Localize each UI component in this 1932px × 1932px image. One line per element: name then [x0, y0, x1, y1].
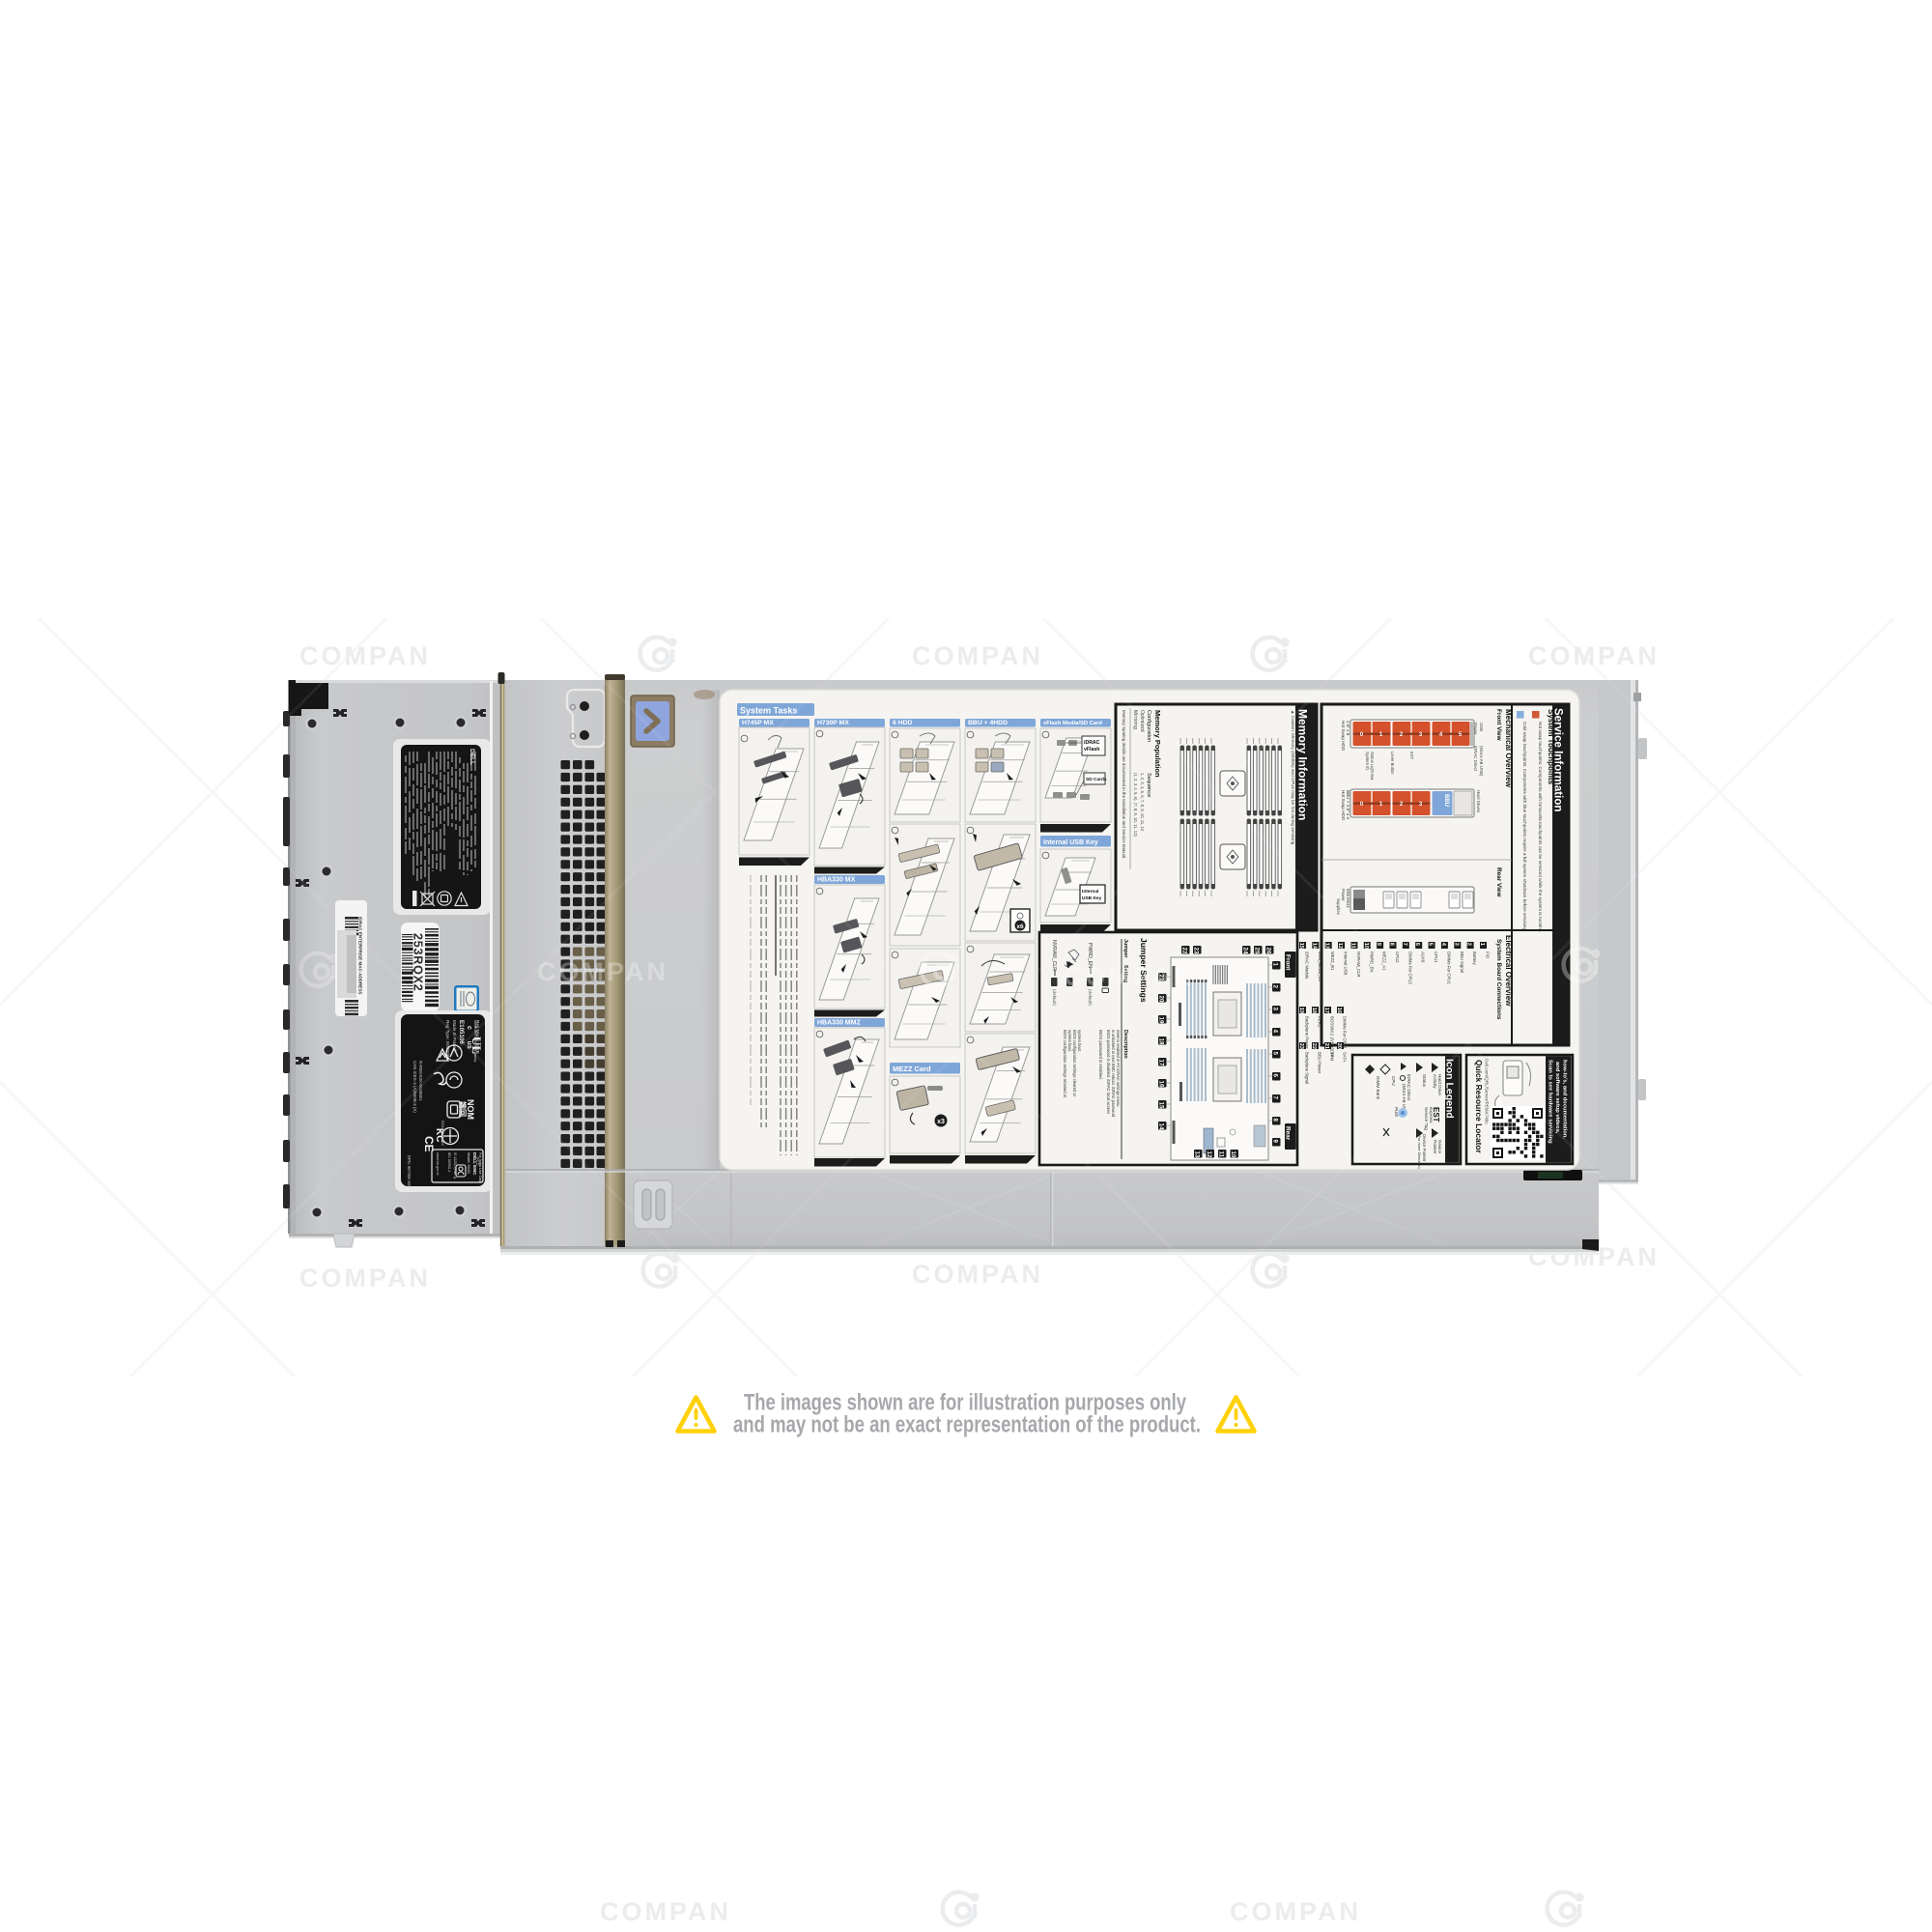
svg-text:For India Use Only: For India Use Only [478, 1152, 482, 1183]
svg-text:System Tasks: System Tasks [740, 706, 797, 716]
svg-text:12: 12 [1206, 1151, 1212, 1158]
svg-text:Description: Description [1122, 1030, 1128, 1059]
svg-text:PWRD_EN: PWRD_EN [1369, 952, 1374, 973]
svg-text:Quick Resource Locator: Quick Resource Locator [1474, 1060, 1484, 1154]
svg-text:vFlash Media/SD Card: vFlash Media/SD Card [1043, 721, 1102, 726]
svg-text:18: 18 [1157, 1038, 1164, 1045]
svg-text:24: 24 [1241, 948, 1248, 954]
svg-text:BBU Power: BBU Power [1318, 1052, 1322, 1074]
svg-text:Internal USB: Internal USB [1344, 952, 1349, 975]
svg-text:(For more Direction): (For more Direction) [1417, 1134, 1422, 1169]
svg-text:Mechanical Overview: Mechanical Overview [1504, 709, 1513, 788]
svg-text:23: 23 [1298, 1043, 1304, 1049]
svg-text:6 HDD: 6 HDD [893, 720, 912, 726]
svg-text:15: 15 [1298, 943, 1304, 949]
svg-text:16: 16 [1157, 1081, 1164, 1088]
svg-text:System Board Connections: System Board Connections [1495, 939, 1502, 1020]
svg-text:and may not be an exact repres: and may not be an exact representation o… [733, 1412, 1201, 1438]
svg-text:reset is enabled in F2 iDRAC s: reset is enabled in F2 iDRAC settings me… [1116, 1030, 1121, 1108]
svg-text:BIOS password is disabled. iDR: BIOS password is disabled. iDRAC local a… [1106, 1030, 1111, 1114]
svg-text:MINI_MEZZ_C1: MINI_MEZZ_C1 [1318, 952, 1322, 982]
svg-text:MEZZ_B1: MEZZ_B1 [1330, 952, 1335, 971]
svg-text:1, 2, 3, 4, 5, 6, 7, 8, 9, 10,: 1, 2, 3, 4, 5, 6, 7, 8, 9, 10, 11, 12 [1140, 773, 1145, 832]
svg-text:10: 10 [1230, 1151, 1236, 1158]
svg-text:9: 9 [1376, 943, 1381, 946]
svg-text:Internal USB Key: Internal USB Key [1043, 839, 1098, 846]
svg-text:TPM: TPM [1330, 1052, 1335, 1061]
svg-text:(Micro-AB USB): (Micro-AB USB) [1479, 746, 1484, 777]
svg-text:www.bis.gov.in: www.bis.gov.in [436, 1152, 440, 1176]
svg-text:HBA330 MMZ: HBA330 MMZ [817, 1020, 861, 1027]
svg-text:Status Light Bar: Status Light Bar [1370, 752, 1375, 781]
svg-text:BBU Signal: BBU Signal [1460, 952, 1464, 973]
svg-text:Hot Swap HDD: Hot Swap HDD [1341, 790, 1346, 821]
svg-text:(default): (default) [1052, 989, 1057, 1006]
svg-text:22: 22 [1311, 1043, 1317, 1049]
svg-text:4: 4 [1271, 1030, 1278, 1034]
svg-text:Power: Power [1473, 723, 1478, 735]
svg-text:vFlash: vFlash [1084, 747, 1099, 753]
svg-text:12: 12 [1337, 943, 1343, 949]
svg-text:R-REM-E2K-E04B001: R-REM-E2K-E04B001 [418, 1061, 423, 1101]
svg-text:1: 1 [1479, 943, 1485, 946]
svg-text:H745P MX: H745P MX [742, 720, 774, 726]
svg-text:BIOS configuration settings cl: BIOS configuration settings cleared at [1072, 1030, 1077, 1097]
svg-text:11: 11 [1350, 943, 1355, 949]
svg-text:▲ Caution: Memory (DIMMs) and: ▲ Caution: Memory (DIMMs) and CPUs may b… [1291, 710, 1295, 845]
svg-text:22: 22 [1180, 948, 1187, 954]
svg-text:15: 15 [1157, 1102, 1164, 1109]
svg-text:COMPAN: COMPAN [299, 1264, 431, 1293]
svg-text:5: 5 [1428, 943, 1434, 946]
svg-text:EST: EST [1409, 752, 1414, 760]
svg-text:19: 19 [1157, 1017, 1164, 1024]
svg-text:BBU: BBU [1443, 794, 1449, 807]
svg-text:BBU + 4HDD: BBU + 4HDD [968, 720, 1008, 726]
svg-text:USB Key: USB Key [1082, 895, 1102, 901]
svg-text:Dell.com/QRL/Server/PEMX740c: Dell.com/QRL/Server/PEMX740c [1485, 1059, 1490, 1124]
svg-text:iDRAC Direct: iDRAC Direct [1473, 746, 1478, 772]
svg-text:2: 2 [1466, 943, 1472, 946]
svg-text:Sequence: Sequence [1146, 773, 1151, 797]
svg-text:13: 13 [1324, 943, 1330, 949]
svg-text:how-to’s, and documentation.: how-to’s, and documentation. [1562, 1060, 1568, 1139]
svg-text:11: 11 [1217, 1151, 1224, 1158]
svg-text:Lever Button: Lever Button [1390, 752, 1395, 775]
svg-text:2: 2 [1271, 985, 1278, 989]
svg-text:17: 17 [1157, 1060, 1164, 1066]
svg-text:H730P MX: H730P MX [817, 720, 849, 726]
svg-text:Memory Information: Memory Information [1296, 709, 1310, 820]
svg-text:CAN ICES-3 (A)/NMB-3 (A): CAN ICES-3 (A)/NMB-3 (A) [412, 1061, 417, 1113]
svg-text:CPU1: CPU1 [1434, 952, 1438, 963]
svg-text:Memory Population: Memory Population [1153, 710, 1162, 778]
svg-text:Memory Sparing details are doc: Memory Sparing details are documented in… [1122, 710, 1126, 860]
svg-text:AUX0: AUX0 [1421, 952, 1426, 963]
svg-text:HBA330 MX: HBA330 MX [817, 877, 856, 884]
svg-text:Jumper: Jumper [1122, 939, 1128, 958]
svg-text:system boot.: system boot. [1067, 1030, 1072, 1052]
svg-text:Internal: Internal [1082, 889, 1098, 895]
svg-text:COMPAN: COMPAN [912, 1260, 1043, 1289]
svg-text:9: 9 [1271, 1140, 1278, 1144]
svg-text:COMPAN: COMPAN [299, 641, 431, 670]
svg-text:x3: x3 [937, 1119, 945, 1125]
svg-text:SD Cards: SD Cards [1086, 777, 1107, 782]
svg-text:21: 21 [1323, 1043, 1329, 1049]
svg-text:x6: x6 [1016, 923, 1024, 930]
svg-text:SATA: SATA [1343, 1052, 1348, 1063]
svg-text:DIMMs For CPU2: DIMMs For CPU2 [1407, 952, 1412, 985]
svg-text:13: 13 [1193, 1151, 1200, 1158]
svg-text:iDRAC: iDRAC [1084, 740, 1100, 746]
svg-text:Hard Drives: Hard Drives [1476, 790, 1481, 813]
svg-text:7: 7 [1271, 1096, 1278, 1100]
svg-text:System Touchpoints: System Touchpoints [1547, 709, 1555, 785]
svg-text:USB: USB [1479, 723, 1484, 731]
svg-text:Cold swap touchpoints: Compone: Cold swap touchpoints: Components with b… [1522, 722, 1527, 931]
svg-text:Front View: Front View [1495, 709, 1502, 741]
svg-text:Backplane Signal: Backplane Signal [1305, 1052, 1310, 1084]
svg-text:8: 8 [1271, 1119, 1278, 1122]
svg-text:17: 17 [1323, 1008, 1329, 1013]
svg-text:Scan to see hardware servicing: Scan to see hardware servicing [1548, 1060, 1553, 1144]
svg-text:諧回: 諧回 [458, 1101, 468, 1117]
svg-text:(default): (default) [1088, 989, 1093, 1006]
svg-text:DELL: DELL [469, 749, 475, 765]
svg-text:Rear View: Rear View [1495, 867, 1502, 896]
svg-text:iDRAC Module: iDRAC Module [1304, 952, 1309, 980]
svg-text:COMPAN: COMPAN [600, 1897, 731, 1926]
svg-text:18: 18 [1311, 1008, 1317, 1013]
svg-text:MEZZ Card: MEZZ Card [893, 1065, 931, 1073]
svg-text:1: 1 [1271, 963, 1278, 967]
svg-text:FIO: FIO [1486, 952, 1491, 959]
svg-text:(1, 2, 3, 4, 5, 6), (7, 8, 9,: (1, 2, 3, 4, 5, 6), (7, 8, 9, 10, 11, 12… [1133, 773, 1138, 837]
svg-text:DIMMs For CPU1: DIMMs For CPU1 [1446, 952, 1451, 985]
svg-text:3: 3 [1453, 943, 1459, 946]
svg-text:Battery: Battery [1472, 952, 1477, 965]
svg-text:BOSS/M.2 2V/IDSDM: BOSS/M.2 2V/IDSDM [1330, 1016, 1335, 1057]
svg-text:Pointer: Pointer [1433, 1140, 1437, 1154]
svg-text:16: 16 [1336, 1008, 1342, 1013]
svg-text:26: 26 [1264, 948, 1271, 954]
svg-text:Electrical Overview: Electrical Overview [1504, 935, 1513, 1007]
svg-text:DIMM Bank: DIMM Bank [1376, 1076, 1380, 1100]
svg-text:COMPAN: COMPAN [912, 641, 1043, 670]
svg-text:Hot swap touchpoints: Componen: Hot swap touchpoints: Components with to… [1538, 722, 1543, 933]
svg-text:IDRAC ENTERPRISE MAC ADDRESS: IDRAC ENTERPRISE MAC ADDRESS [358, 917, 363, 994]
svg-text:25: 25 [1253, 948, 1260, 954]
svg-text:20: 20 [1336, 1043, 1342, 1049]
svg-text:and software setup videos,: and software setup videos, [1554, 1062, 1560, 1134]
svg-text:6: 6 [1271, 1074, 1278, 1078]
svg-text:R33302 RoHS: R33302 RoHS [440, 1121, 445, 1146]
svg-text:DELL EMC: DELL EMC [472, 1152, 477, 1176]
svg-text:CPU2: CPU2 [1395, 952, 1400, 963]
svg-text:Service Tag: Service Tag [1424, 1107, 1429, 1130]
svg-text:8: 8 [1388, 943, 1394, 946]
svg-text:23: 23 [1192, 948, 1199, 954]
svg-text:COMPAN: COMPAN [1064, 962, 1195, 991]
svg-text:Model: E04B: Model: E04B [467, 1152, 470, 1174]
svg-text:COMPAN: COMPAN [537, 957, 668, 986]
svg-text:253RQX2: 253RQX2 [412, 933, 425, 992]
svg-text:14: 14 [1311, 943, 1317, 950]
svg-text:19: 19 [1298, 1008, 1304, 1013]
svg-text:Front: Front [1285, 954, 1292, 971]
svg-text:PERC: PERC [1318, 1016, 1322, 1028]
svg-text:BIOS configuration settings re: BIOS configuration settings retained at [1063, 1030, 1067, 1098]
svg-text:IEC 60950-1: IEC 60950-1 [447, 1152, 451, 1172]
svg-text:20: 20 [1157, 996, 1164, 1003]
svg-text:14: 14 [1157, 1123, 1164, 1130]
svg-text:system boot.: system boot. [1077, 1030, 1082, 1052]
svg-text:NVRAM_CLR: NVRAM_CLR [1356, 952, 1361, 978]
svg-text:CPU: CPU [1391, 1076, 1396, 1086]
svg-text:is unlocked at next BMC reboot: is unlocked at next BMC reboot. iDRAC pa… [1111, 1030, 1116, 1118]
svg-text:BIOS password is enabled.: BIOS password is enabled. [1098, 1030, 1103, 1080]
svg-text:Rear: Rear [1285, 1126, 1292, 1141]
svg-text:7: 7 [1402, 943, 1407, 946]
svg-text:DPN: 80Y5M A00: DPN: 80Y5M A00 [407, 1155, 412, 1187]
svg-text:System ID: System ID [1365, 752, 1370, 770]
svg-text:6: 6 [1414, 943, 1420, 946]
svg-text:Hot Swap HDD: Hot Swap HDD [1341, 721, 1346, 752]
svg-text:3: 3 [1271, 1008, 1278, 1011]
svg-text:5: 5 [1271, 1052, 1278, 1056]
